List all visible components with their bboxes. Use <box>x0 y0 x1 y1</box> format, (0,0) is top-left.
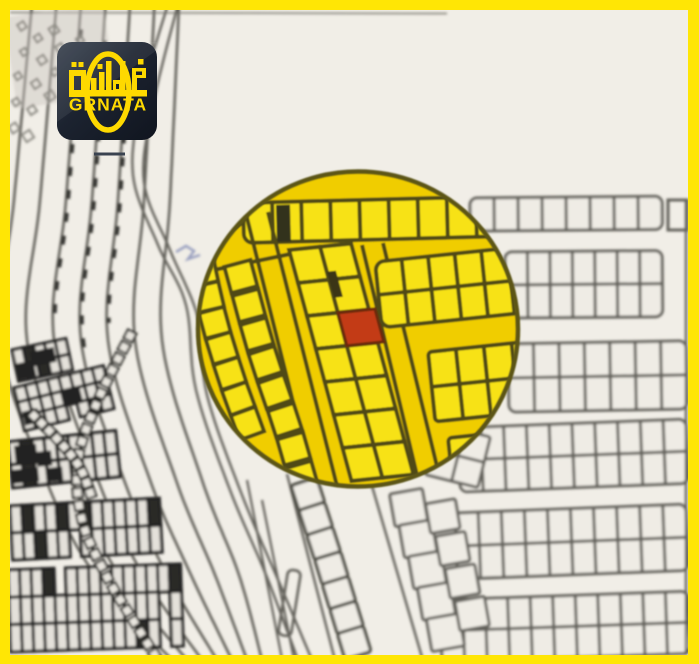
svg-text:GRNATA: GRNATA <box>69 95 147 115</box>
